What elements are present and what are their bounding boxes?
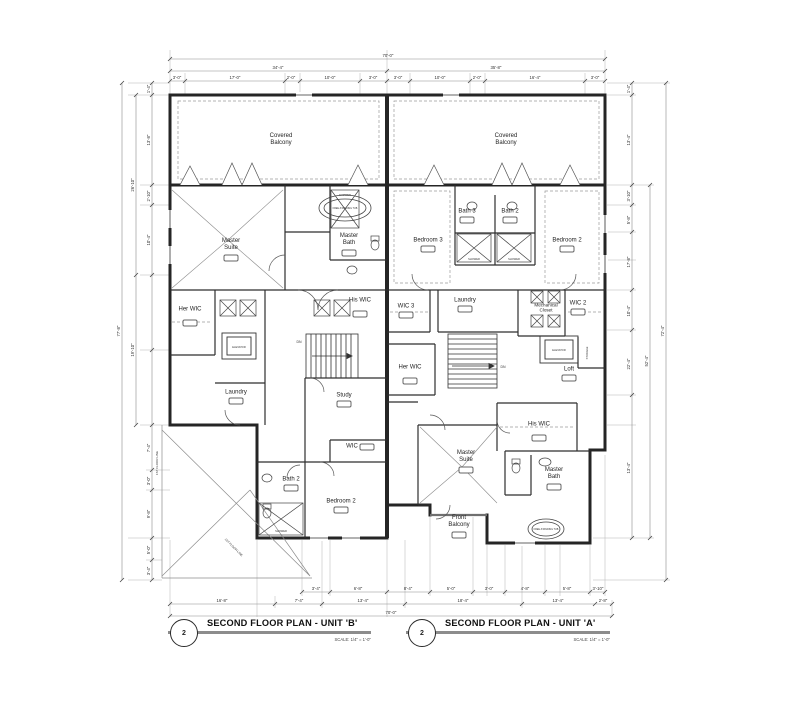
room-label-bedroom2-a: Bedroom 2: [552, 238, 581, 245]
room-label-bath2-a: Bath 2: [501, 209, 518, 216]
room-tag: [334, 507, 349, 514]
dim: 16'-8": [217, 598, 228, 603]
dim: 3'-0": [146, 476, 151, 485]
dim: 5'-8": [563, 586, 572, 591]
dim: 26'-10": [130, 178, 135, 192]
dim: 3'-10": [593, 586, 604, 591]
room-tag: [183, 320, 198, 327]
dim: 3'-0": [173, 75, 182, 80]
dim: 13'-4": [358, 598, 369, 603]
down-label-a: DN: [500, 365, 506, 369]
dim-top-left: 34'-4": [273, 65, 284, 70]
dimension-lines: [122, 59, 666, 616]
elevator-label-a: ELEVATOR: [552, 348, 566, 352]
room-label-laundry-a: Laundry: [454, 298, 476, 305]
room-label-bath3-a: Bath 3: [458, 209, 475, 216]
dim-right-total: 72'-4": [660, 325, 665, 336]
dim: 5'-8": [626, 215, 631, 224]
interior-walls-unit-a: [387, 185, 605, 505]
room-tag: [532, 435, 547, 442]
dim: 22'-4": [626, 358, 631, 369]
tub-label-a: FREE-STANDING TUB: [534, 528, 559, 531]
room-tag: [421, 246, 436, 253]
title-bar-a: [406, 631, 610, 634]
dim: 2'-10": [146, 190, 151, 201]
room-label-wic-b: WIC: [346, 444, 358, 451]
scale-text-a: SCALE: 1/4" = 1'-0": [539, 637, 610, 642]
dim: 5'-0": [146, 545, 151, 554]
room-tag: [562, 375, 577, 382]
dim: 3'-10": [626, 190, 631, 201]
room-tag: [459, 467, 474, 474]
room-tag: [353, 311, 368, 318]
room-label-her-wic-a: Her WIC: [395, 365, 425, 372]
room-tag: [458, 306, 473, 313]
dim: 1'-4": [146, 84, 151, 93]
room-tag: [229, 398, 244, 405]
room-label-study-b: Study: [336, 393, 351, 400]
dim: 19'-10": [130, 343, 135, 357]
dim: 3'-0": [394, 75, 403, 80]
detail-number-a: 2: [420, 630, 424, 637]
room-label-mechanical-closet-a: Mechanical Closet: [533, 303, 559, 314]
dim: 3'-0": [591, 75, 600, 80]
room-label-master-suite-a: Master Suite: [451, 450, 481, 464]
shower-label-a-bath3: SHOWER: [468, 257, 480, 261]
stairs-unit-a: [448, 334, 497, 388]
storage-label: STORAGE: [585, 346, 589, 359]
dim-top-right: 35'-8": [491, 65, 502, 70]
floor-plan-sheet: 70'-0" 34'-4" 35'-8" 3'-0" 17'-0" 2'-0" …: [0, 0, 800, 725]
room-label-covered-balcony-a: Covered Balcony: [489, 133, 523, 147]
room-label-covered-balcony-b: Covered Balcony: [264, 133, 298, 147]
dim: 13'-4": [626, 134, 631, 145]
room-tag: [560, 246, 575, 253]
room-tag: [503, 217, 518, 224]
room-label-his-wic-a: His WIC: [524, 422, 554, 429]
dim: 10'-0": [325, 75, 336, 80]
room-label-bedroom2-b: Bedroom 2: [326, 499, 355, 506]
room-label-master-bath-a: Master Bath: [539, 467, 569, 481]
dim: 1'-4": [626, 84, 631, 93]
shower-label-b-master: SHOWER: [339, 193, 351, 197]
roof-lines: [162, 425, 312, 578]
dim: 13'-4": [626, 462, 631, 473]
dim: 10'-4": [146, 234, 151, 245]
dim: 3'-4": [312, 586, 321, 591]
title-text-a: SECOND FLOOR PLAN - UNIT 'A': [445, 618, 595, 628]
dim: 13'-8": [146, 134, 151, 145]
room-label-front-balcony-a: Front Balcony: [444, 515, 474, 529]
dim: 18'-4": [458, 598, 469, 603]
dim: 3'-0": [369, 75, 378, 80]
dim: 2'-8": [599, 598, 608, 603]
cabinet-x-boxes: [220, 291, 560, 327]
dim-left-total: 77'-8": [116, 325, 121, 336]
dim-top-total: 70'-0": [383, 53, 394, 58]
room-label-master-suite-b: Master Suite: [216, 238, 246, 252]
room-tag: [360, 444, 375, 451]
stairs-unit-b: [306, 334, 358, 378]
room-label-bath2-b: Bath 2: [282, 477, 299, 484]
dim: 3'-4": [146, 566, 151, 575]
dim: 17'-8": [626, 256, 631, 267]
detail-number-b: 2: [182, 630, 186, 637]
room-tag: [452, 532, 467, 539]
dim: 7'-4": [295, 598, 304, 603]
dim: 8'-4": [404, 586, 413, 591]
dim: 4'-8": [521, 586, 530, 591]
room-tag: [224, 255, 239, 262]
room-label-his-wic-b: His WIC: [345, 298, 375, 305]
first-floor-line-roof: 1ST FLOOR LINE: [224, 537, 244, 557]
room-label-bedroom3-a: Bedroom 3: [413, 238, 442, 245]
room-label-laundry-b: Laundry: [225, 390, 247, 397]
room-tag: [399, 312, 414, 319]
room-tag: [284, 485, 299, 492]
dimension-texts: 70'-0" 34'-4" 35'-8" 3'-0" 17'-0" 2'-0" …: [116, 53, 665, 615]
room-label-her-wic-b: Her WIC: [175, 307, 205, 314]
shower-label-b-bath2: SHOWER: [275, 529, 287, 533]
room-label-wic2-a: WIC 2: [570, 301, 587, 308]
dim: 10'-4": [626, 305, 631, 316]
title-bar-b: [168, 631, 371, 634]
elevator-label-b: ELEVATOR: [232, 345, 246, 349]
dim: 2'-0": [287, 75, 296, 80]
showers: [259, 190, 531, 535]
dim: 2'-0": [473, 75, 482, 80]
dim: 7'-4": [146, 443, 151, 452]
room-tag: [403, 378, 418, 385]
title-circle-a: 2: [408, 619, 436, 647]
tub-label-b: FREE-STANDING TUB: [333, 207, 358, 210]
floor-plan-linework: 70'-0" 34'-4" 35'-8" 3'-0" 17'-0" 2'-0" …: [0, 0, 800, 725]
dim-right-mid: 52'-4": [644, 355, 649, 366]
room-tag: [571, 309, 586, 316]
first-floor-line-left: 1ST FLOOR LINE: [155, 451, 159, 475]
dim: 10'-0": [435, 75, 446, 80]
dim: 6'-8": [354, 586, 363, 591]
room-label-master-bath-b: Master Bath: [334, 233, 364, 247]
dim: 16'-4": [530, 75, 541, 80]
dim: 5'-0": [447, 586, 456, 591]
shower-label-a-bath2: SHOWER: [508, 257, 520, 261]
title-text-b: SECOND FLOOR PLAN - UNIT 'B': [207, 618, 357, 628]
dim: 17'-0": [230, 75, 241, 80]
title-circle-b: 2: [170, 619, 198, 647]
dim: 13'-4": [553, 598, 564, 603]
door-swings: [225, 255, 576, 519]
room-tag: [547, 484, 562, 491]
room-tag: [337, 401, 352, 408]
balcony-door-swings: [180, 163, 580, 185]
dim: 9'-8": [146, 509, 151, 518]
dim: 3'-0": [485, 586, 494, 591]
dim-bottom-total: 70'-0": [386, 610, 397, 615]
room-tag: [342, 250, 357, 257]
room-label-wic3-a: WIC 3: [398, 304, 415, 311]
room-label-loft-a: Loft: [564, 367, 574, 374]
scale-text-b: SCALE: 1/4" = 1'-0": [300, 637, 371, 642]
room-tag: [460, 217, 475, 224]
down-label-b: DN: [296, 340, 302, 344]
